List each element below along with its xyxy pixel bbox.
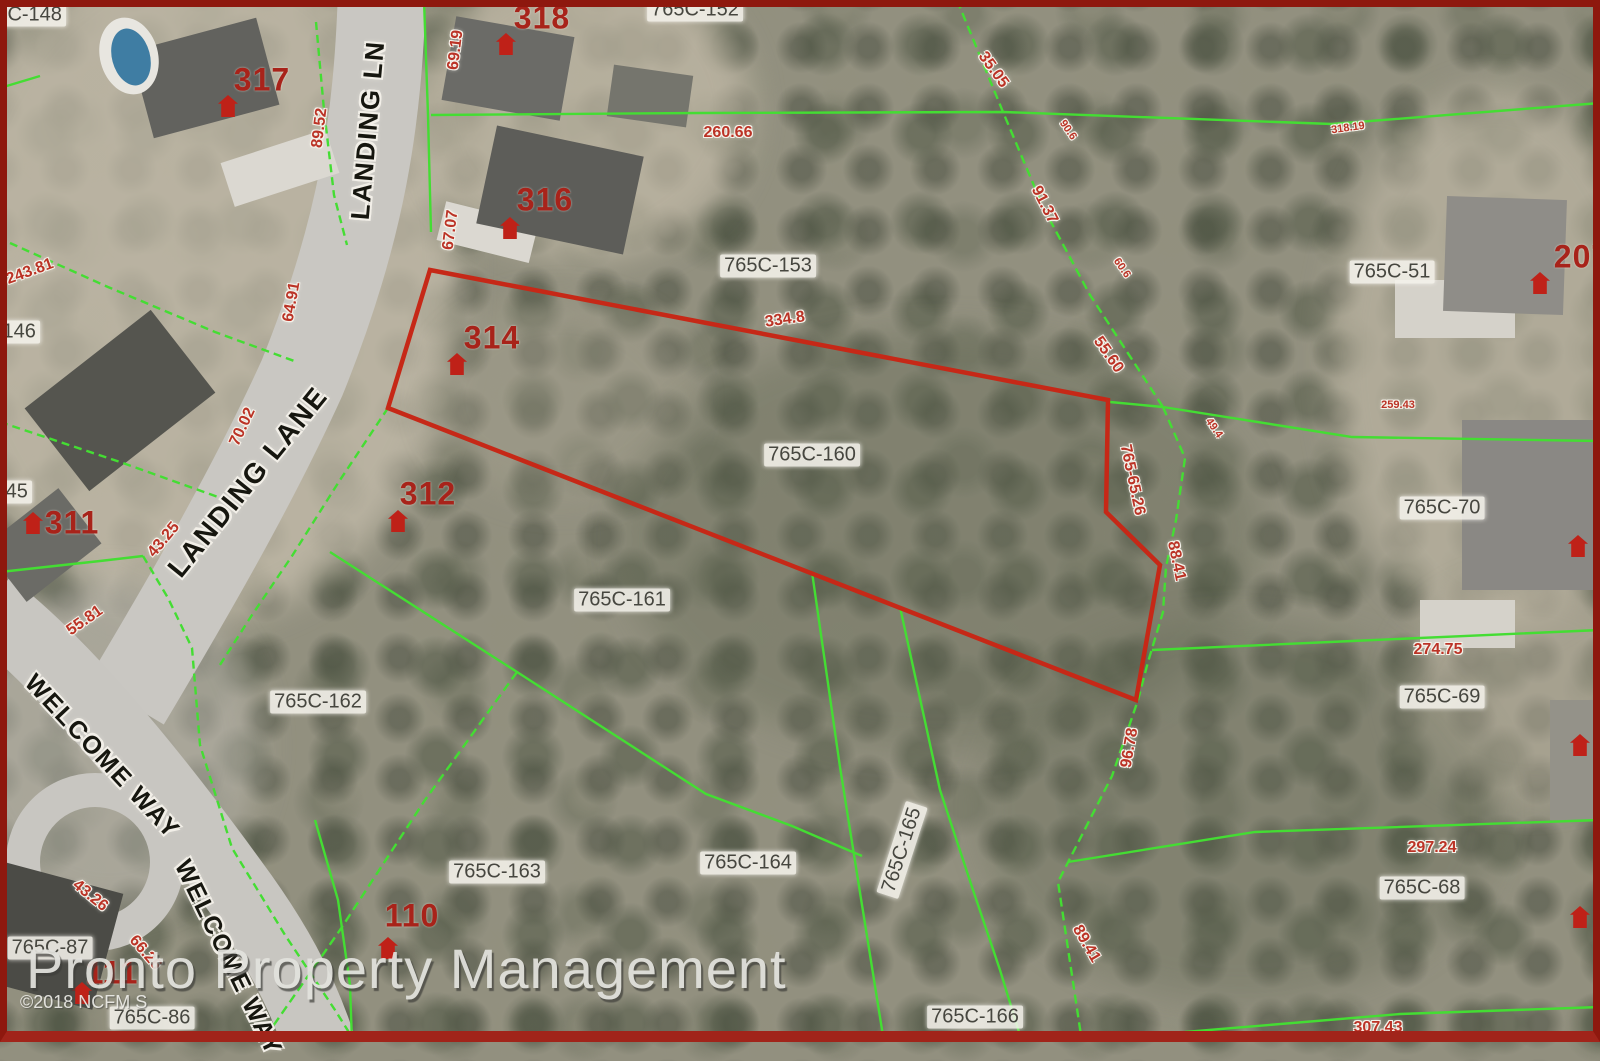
parcel-label: 765C-68 <box>1380 877 1465 900</box>
parcel-map: { "watermark": { "text": "Pronto Propert… <box>0 0 1600 1042</box>
dimension-label: 259.43 <box>1381 399 1415 411</box>
parcel-label: 765C-70 <box>1400 497 1485 520</box>
parcel-label-highlighted: 765C-160 <box>764 444 860 467</box>
parcel-label: 765C-145 <box>0 481 32 504</box>
parcel-lines-overlay <box>0 0 1600 1042</box>
parcel-label: 765C-51 <box>1350 261 1435 284</box>
parcel-label: 765C-148 <box>0 4 66 27</box>
address-label: 207 <box>1554 239 1600 276</box>
dimension-label: 260.66 <box>704 124 753 142</box>
parcel-label: 765C-162 <box>270 691 366 714</box>
parcel-label: 765C-146 <box>0 321 40 344</box>
address-label: 314 <box>464 320 520 357</box>
parcel-label: 765C-166 <box>927 1006 1023 1029</box>
address-label: 317 <box>234 62 290 99</box>
parcel-label: 765C-69 <box>1400 686 1485 709</box>
parcel-label: 765C-161 <box>574 589 670 612</box>
address-label: 318 <box>514 0 570 37</box>
parcel-boundary-lines <box>0 0 1600 1042</box>
parcel-label: 765C-153 <box>720 255 816 278</box>
address-label: 311 <box>45 505 100 542</box>
parcel-label: 765C-152 <box>647 0 743 22</box>
address-label: 110 <box>385 898 440 935</box>
watermark-text: Pronto Property Management <box>26 936 787 1001</box>
parcel-label: 765C-163 <box>449 861 545 884</box>
address-label: 312 <box>400 476 456 513</box>
dimension-label: 297.24 <box>1408 839 1457 857</box>
dimension-label: 307.43 <box>1354 1019 1403 1037</box>
dimension-label: 274.75 <box>1414 641 1463 659</box>
address-label: 316 <box>517 182 573 219</box>
parcel-label: 765C-164 <box>700 852 796 875</box>
